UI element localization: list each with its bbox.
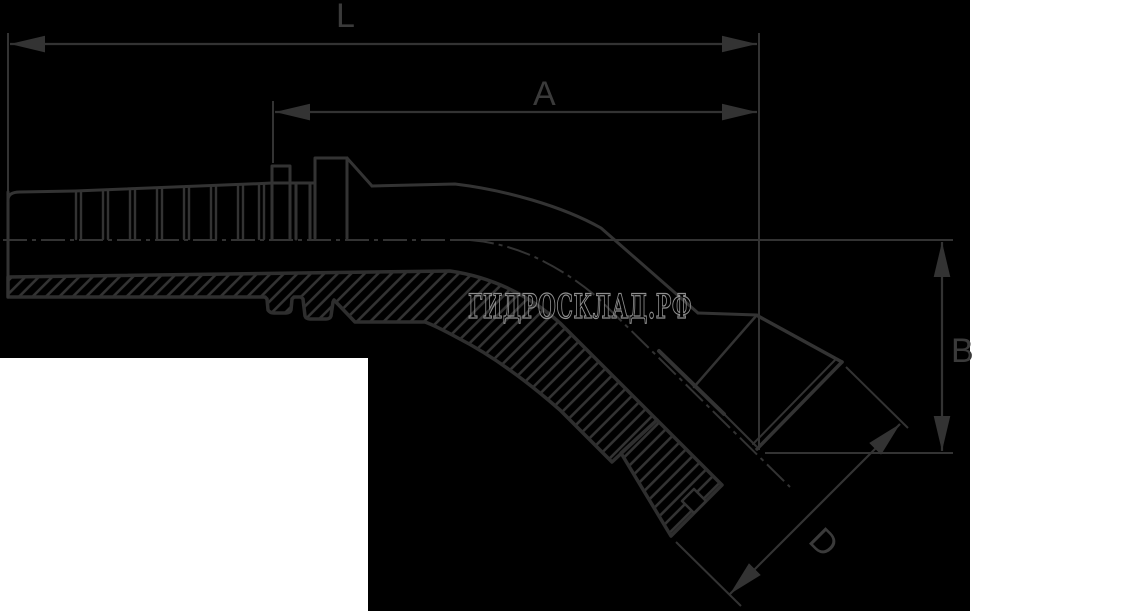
- label-B: B: [951, 332, 974, 370]
- watermark-text: ГИДРОСКЛАД.РФ: [468, 287, 692, 327]
- flange-back-top: [698, 313, 757, 315]
- technical-drawing: L A B D ГИДРОСКЛАД.РФ: [0, 0, 1141, 611]
- white-panel-right: [970, 0, 1141, 611]
- white-panel-bottom-left: [0, 358, 368, 611]
- label-A: A: [533, 75, 556, 113]
- technical-drawing-stage: L A B D ГИДРОСКЛАД.РФ: [0, 0, 1141, 611]
- label-L: L: [336, 0, 355, 35]
